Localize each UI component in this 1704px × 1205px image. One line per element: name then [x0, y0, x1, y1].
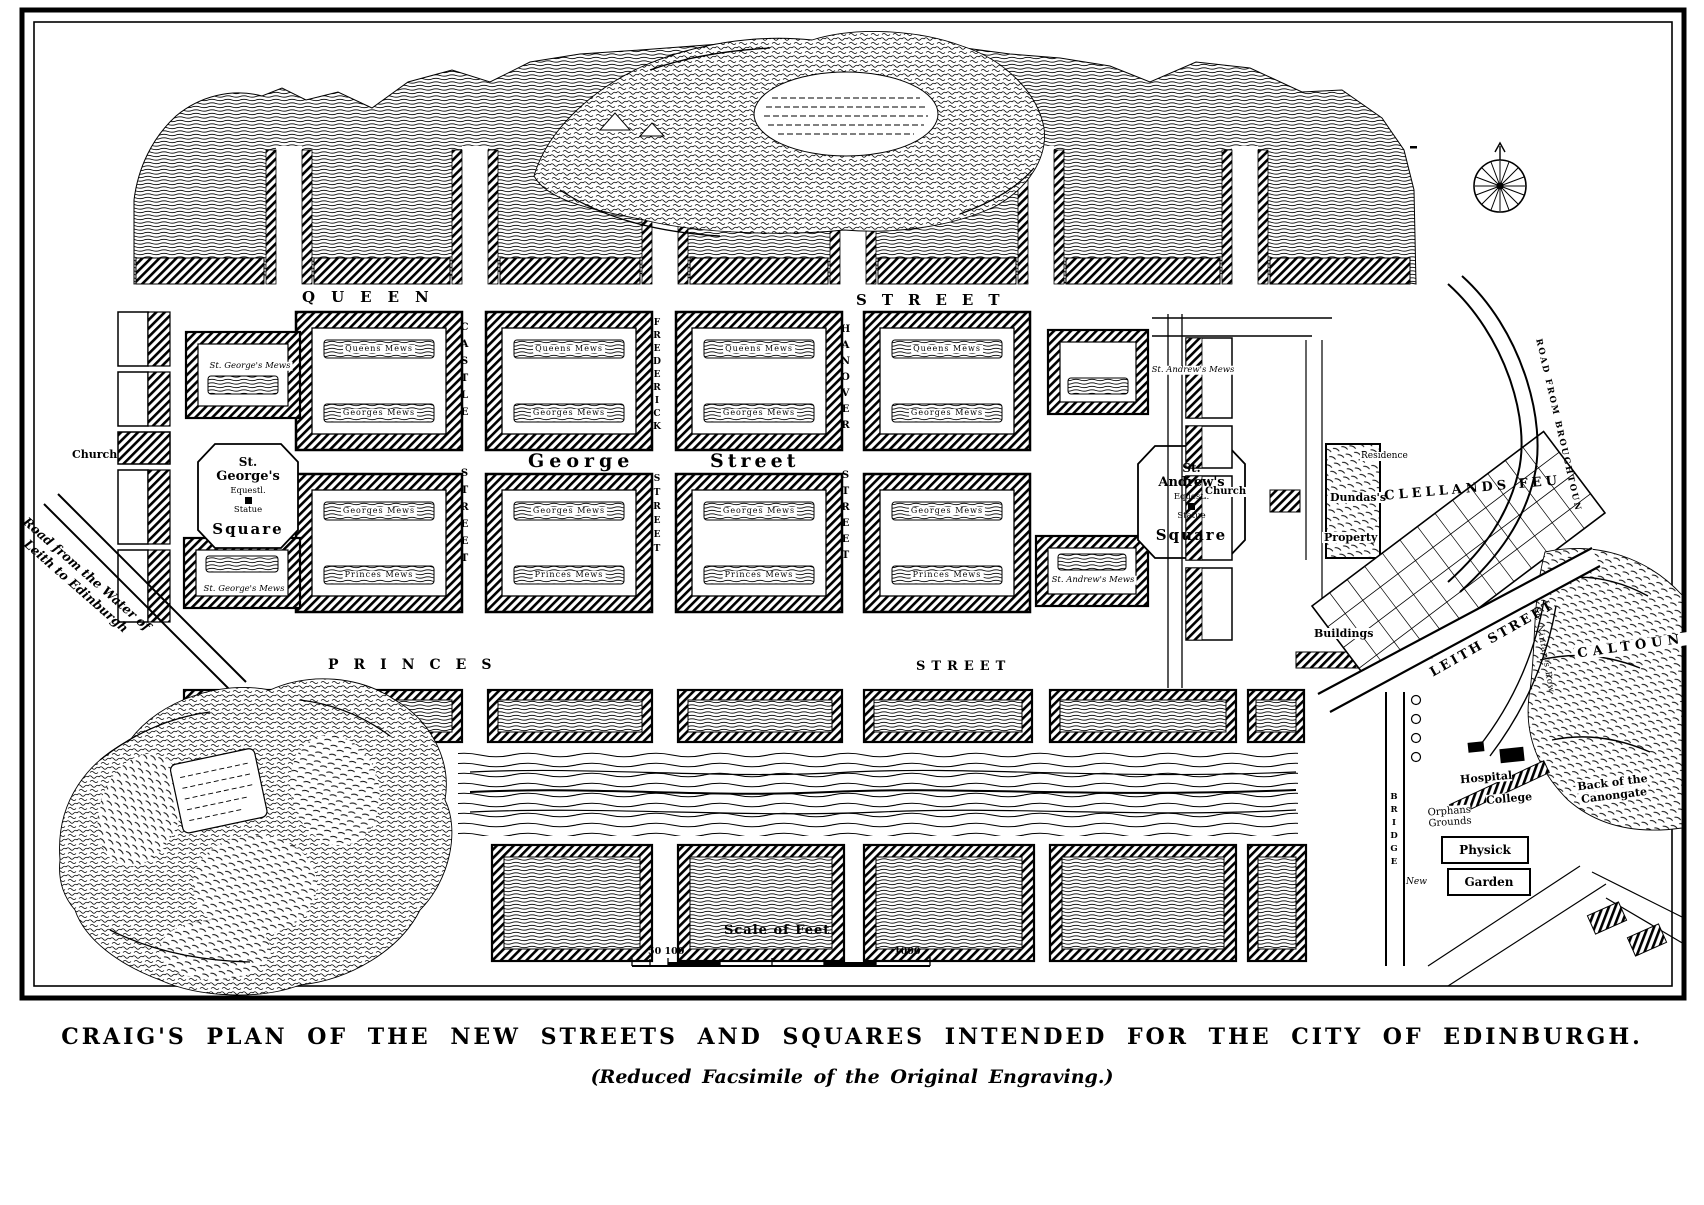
church-label-west: Church: [72, 449, 117, 460]
st-andrews-square-line4: Statue: [1177, 511, 1205, 521]
frederick-street-label-2: STREET: [652, 474, 662, 558]
st-andrews-mews-north: St. Andrew's Mews: [1150, 366, 1237, 375]
george-street-label-2: Street: [710, 452, 799, 471]
st-andrews-square-line1: St.: [1182, 461, 1200, 475]
st-andrews-square: St. Andrew's Equestl. Statue Square: [1138, 446, 1245, 558]
st-georges-square-line2: George's: [216, 469, 280, 484]
queen-street-label-1: QUEEN: [302, 290, 445, 305]
caption-subtitle: (Reduced Facsimile of the Original Engra…: [0, 1068, 1704, 1087]
buildings-label: Buildings: [1312, 628, 1375, 639]
st-georges-square-line4: Statue: [234, 505, 262, 515]
castle-street-label-2: STREET: [459, 468, 470, 570]
frederick-street-label: FREDERICK: [652, 318, 662, 435]
mews-label: Princes Mews: [533, 571, 606, 579]
church-label-east: Church: [1203, 487, 1248, 497]
statue-marker: [245, 497, 252, 504]
hanover-street-label-2: STREET: [840, 470, 851, 566]
statue-marker: [1188, 503, 1195, 510]
mews-label: Georges Mews: [909, 507, 985, 515]
mews-label: Queens Mews: [533, 345, 605, 353]
st-georges-mews-north: St. George's Mews: [208, 362, 293, 371]
george-street-label-1: George: [528, 452, 634, 471]
west-church-strip: [118, 312, 170, 622]
caption-title: CRAIG'S PLAN OF THE NEW STREETS AND SQUA…: [0, 1026, 1704, 1048]
princes-street-label-2: STREET: [916, 660, 1011, 673]
bridge-label: BRIDGE: [1389, 792, 1399, 870]
scale-bar-left-labels: 50 100: [648, 947, 684, 957]
south-blocks: [492, 845, 1306, 961]
st-andrews-square-line5: Square: [1156, 526, 1227, 544]
scale-bar-title: Scale of Feet: [724, 924, 830, 937]
orphans-grounds-label: Orphans Grounds: [1427, 805, 1472, 830]
mews-label: Georges Mews: [341, 507, 417, 515]
st-andrews-mews-south: St. Andrew's Mews: [1050, 576, 1137, 585]
mews-label: Princes Mews: [723, 571, 796, 579]
allegorical-vignette: [60, 679, 452, 995]
north-needle-icon: [1495, 143, 1505, 160]
mews-label: Princes Mews: [911, 571, 984, 579]
craig-plan-engraving: QUEEN STREET George Street PRINCES STREE…: [0, 0, 1704, 1205]
mews-label: Queens Mews: [343, 345, 415, 353]
garden-box: Garden: [1447, 868, 1531, 896]
physick-label: Physick: [1459, 843, 1511, 857]
physick-box: Physick: [1441, 836, 1529, 864]
nor-loch-water: [458, 748, 1298, 836]
st-georges-mews-south: St. George's Mews: [202, 585, 287, 594]
queen-street-label-2: STREET: [856, 293, 1015, 308]
st-georges-square-line3: Equestl.: [230, 486, 265, 496]
compass-rose: [1474, 143, 1526, 212]
mews-label: Georges Mews: [909, 409, 985, 417]
princes-street-label-1: PRINCES: [328, 658, 506, 672]
bridge-new-label: New: [1406, 878, 1427, 887]
mews-label: Georges Mews: [531, 507, 607, 515]
garden-label: Garden: [1464, 875, 1513, 889]
castle-street-label: CASTLE: [459, 322, 470, 424]
property-label: Property: [1322, 532, 1379, 543]
residence-label: Residence: [1360, 452, 1409, 461]
hanover-street-label: HANOVER: [840, 324, 851, 436]
st-georges-square-line5: Square: [212, 520, 283, 538]
dundas-label: Dundas's: [1328, 492, 1388, 503]
mews-label: Queens Mews: [723, 345, 795, 353]
scale-bar-right-label: 1000: [894, 947, 920, 957]
city-blocks: [184, 312, 1148, 612]
st-georges-square: St. George's Equestl. Statue Square: [198, 444, 298, 548]
mews-label: Georges Mews: [531, 409, 607, 417]
mews-label: Queens Mews: [911, 345, 983, 353]
st-georges-square-line1: St.: [239, 455, 257, 469]
mews-label: Georges Mews: [721, 409, 797, 417]
mews-label: Princes Mews: [343, 571, 416, 579]
mews-label: Georges Mews: [721, 507, 797, 515]
mews-label: Georges Mews: [341, 409, 417, 417]
